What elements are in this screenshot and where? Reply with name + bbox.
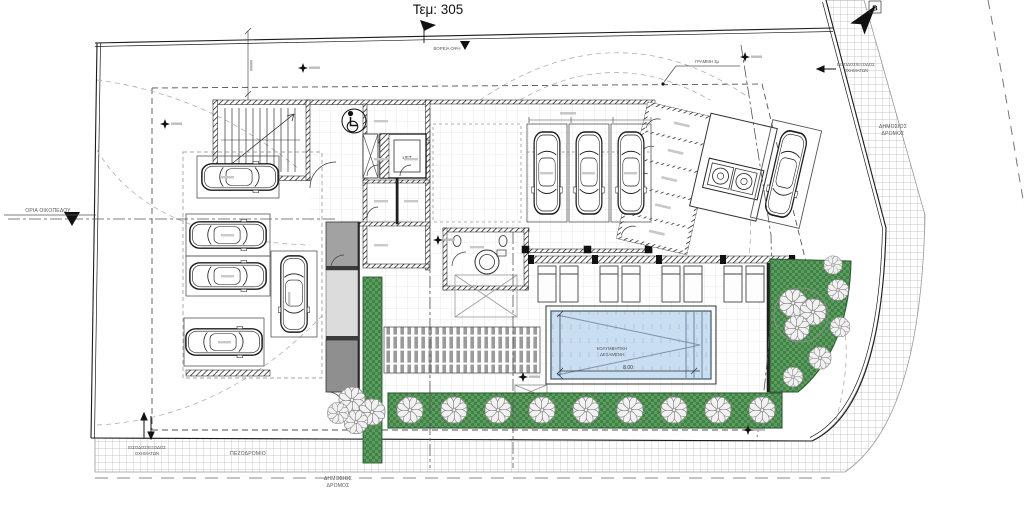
vehicle-access-right-1: ΕΙΣΟΔΟΣ/ΕΞΟΔΟΣ: [837, 62, 875, 67]
setback-line-label: ΓΡΑΜΜΗ 3μ: [695, 59, 720, 64]
car: [278, 256, 309, 332]
ramp-strip: [326, 222, 360, 408]
pergola-trellis: [528, 255, 795, 264]
vehicle-access-bottom-1: ΕΙΣΟΔΟΣ/ΕΞΟΔΟΣ: [128, 445, 166, 450]
car: [202, 161, 278, 192]
public-road-bottom-2: ΔΡΟΜΟΣ: [327, 483, 350, 489]
deck: [384, 327, 540, 373]
public-road-bottom-1: ΔΗΜΟΣΙΟΣ: [324, 476, 352, 482]
vehicle-access-right-2: ΟΧΗΜΑΤΩΝ: [844, 68, 868, 73]
green-hedge-strip: [363, 277, 382, 463]
pool-label-1: ΚΟΛΥΜΒΗΤΙΚΗ: [597, 346, 628, 351]
plot-number-label: Τεμ: 305: [413, 2, 464, 17]
plan-canvas: LIFT: [0, 0, 1024, 512]
public-road-right-2: ΔΡΟΜΟΣ: [882, 131, 905, 137]
vehicle-access-bottom-2: ΟΧΗΜΑΤΩΝ: [135, 451, 159, 456]
public-road-right-1: ΔΗΜΟΣΙΟΣ: [879, 124, 907, 130]
north-letter: B: [872, 4, 878, 13]
plot-boundary-label: ΟΡΙΑ ΟΙΚΟΠΕΔΟΥ: [25, 208, 71, 214]
pool-dim-text: 8.00: [623, 365, 633, 371]
sidewalk-label: ΠΕΖΟΔΡΟΜΙΟ: [230, 451, 266, 457]
swimming-pool: ΚΟΛΥΜΒΗΤΙΚΗ ΔΕΞΑΜΕΝΗ 8.00: [546, 306, 716, 384]
pool-label-2: ΔΕΞΑΜΕΝΗ: [600, 352, 624, 357]
sun-loungers: [538, 266, 791, 302]
lift: LIFT: [363, 134, 426, 178]
north-elevation-label: ΒΟΡΕΙΑ ΟΨΗ: [434, 46, 461, 51]
site-plan-drawing: LIFT: [0, 0, 1024, 512]
